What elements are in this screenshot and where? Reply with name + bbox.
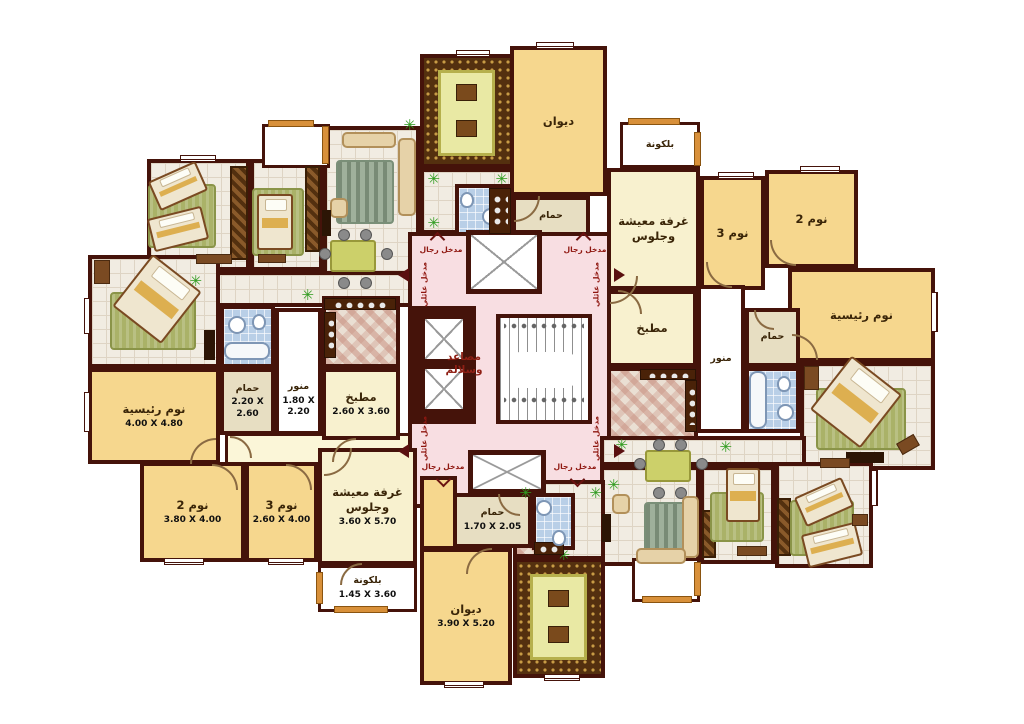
- wc-icon: [552, 530, 566, 546]
- rail-icon: [642, 596, 692, 603]
- msq-icon: [456, 84, 477, 101]
- window-icon: [718, 172, 754, 179]
- room-balcony-top-left: [262, 124, 330, 168]
- tv-icon: [602, 514, 611, 542]
- room-diwan-bottom-dimensions: 3.90 X 5.20: [437, 619, 495, 631]
- rail-icon: [694, 132, 701, 166]
- chair-icon: [653, 439, 665, 451]
- rail-icon: [628, 118, 680, 125]
- chair-icon: [360, 277, 372, 289]
- room-stairs-landing: [510, 352, 576, 388]
- rail-icon: [316, 572, 323, 604]
- wc-icon: [777, 376, 791, 392]
- window-icon: [456, 50, 490, 57]
- room-balcony-left-dimensions: 1.45 X 3.60: [339, 590, 397, 602]
- sofa-icon: [330, 198, 348, 218]
- chair-icon: [338, 277, 350, 289]
- window-icon: [800, 166, 840, 173]
- tv-icon: [322, 210, 331, 236]
- tub-icon: [224, 342, 270, 360]
- side-icon: [258, 254, 286, 263]
- wc-icon: [252, 314, 266, 330]
- tv-icon: [204, 330, 215, 360]
- side-icon: [804, 366, 819, 390]
- room-balcony-top-right: بلكونة: [620, 122, 700, 168]
- room-lightwell-right: منور: [697, 285, 745, 433]
- room-lightwell-left: منور1.80 X 2.20: [275, 308, 322, 435]
- window-icon: [164, 558, 204, 565]
- side-icon: [852, 514, 868, 526]
- room-balcony-left: بلكونة1.45 X 3.60: [318, 565, 417, 612]
- side-icon: [94, 260, 110, 284]
- room-diwan-top: ديوان: [510, 46, 607, 196]
- chair-icon: [338, 229, 350, 241]
- arrow-l-icon: [398, 268, 409, 282]
- mat-icon: [530, 574, 587, 660]
- counter-icon: [324, 312, 336, 358]
- plant-icon: ✳: [426, 172, 440, 186]
- tub-icon: [749, 371, 767, 429]
- sofa-icon: [342, 132, 396, 148]
- chair-icon: [360, 229, 372, 241]
- room-balcony-top-right-label: بلكونة: [623, 125, 697, 165]
- rail-icon: [268, 120, 314, 127]
- sofa-icon: [398, 138, 416, 216]
- room-bath-left-dimensions: 2.20 X 2.60: [224, 397, 271, 420]
- room-kitchen-left-dimensions: 2.60 X 3.60: [332, 407, 390, 419]
- plant-icon: ✳: [300, 288, 314, 302]
- window-icon: [180, 155, 216, 162]
- room-kitchen-left: مطبخ2.60 X 3.60: [322, 368, 400, 440]
- sink-icon: [228, 316, 246, 334]
- arrow-l-icon: [398, 444, 409, 458]
- chair-icon: [653, 487, 665, 499]
- room-stairs-dots-top: [504, 322, 584, 330]
- bed-icon: [257, 194, 293, 250]
- room-living-left-dimensions: 3.60 X 5.70: [339, 517, 397, 529]
- chair-icon: [675, 439, 687, 451]
- window-icon: [268, 558, 304, 565]
- window-icon: [84, 392, 91, 432]
- counter-icon: [640, 369, 696, 380]
- tv-icon: [846, 452, 884, 463]
- room-kitchen-left-label: مطبخ2.60 X 3.60: [326, 372, 396, 436]
- plant-icon: ✳: [588, 486, 602, 500]
- room-lightwell-right-label: منور: [701, 289, 741, 429]
- window-icon: [84, 298, 91, 334]
- room-bed2-left-dimensions: 3.80 X 4.00: [164, 515, 222, 527]
- room-stairs-dots-bottom: [504, 396, 584, 404]
- ward-icon: [305, 166, 320, 252]
- room-lightwell-left-dimensions: 1.80 X 2.20: [279, 396, 318, 419]
- dining-icon: [645, 450, 691, 482]
- room-bath-left: حمام2.20 X 2.60: [220, 368, 275, 435]
- room-lightwell-left-label: منور1.80 X 2.20: [279, 312, 318, 431]
- plant-icon: ✳: [494, 172, 508, 186]
- side-icon: [196, 254, 232, 264]
- msq-icon: [548, 590, 569, 607]
- room-vestibule-top: [466, 230, 542, 294]
- ward-icon: [777, 498, 791, 556]
- room-elevator-1: [420, 314, 468, 364]
- chair-icon: [634, 458, 646, 470]
- plant-icon: ✳: [606, 478, 620, 492]
- room-master-left-dimensions: 4.00 X 4.80: [125, 419, 183, 431]
- room-vestibule-bottom: [468, 450, 546, 494]
- plant-icon: ✳: [518, 486, 532, 500]
- window-icon: [444, 681, 484, 688]
- side-icon: [820, 458, 850, 468]
- window-icon: [931, 292, 938, 332]
- bed-icon: [726, 468, 760, 522]
- rail-icon: [322, 126, 329, 164]
- window-icon: [536, 42, 574, 49]
- sink-icon: [536, 500, 552, 516]
- room-diwan-entry: [420, 476, 457, 550]
- ward-icon: [230, 166, 248, 260]
- room-bath-bottom-dimensions: 1.70 X 2.05: [464, 522, 522, 534]
- msq-icon: [548, 626, 569, 643]
- floor-plan-canvas: بلكونةغرفة معيشةوجلوسنوم 3نوم 2نوم رئيسي…: [0, 0, 1024, 724]
- msq-icon: [456, 120, 477, 137]
- rail-icon: [334, 606, 388, 613]
- side-icon: [737, 546, 767, 556]
- counter-icon: [685, 380, 697, 432]
- sofa-icon: [636, 548, 686, 564]
- sink-icon: [777, 404, 794, 421]
- plant-icon: ✳: [426, 216, 440, 230]
- plant-icon: ✳: [718, 440, 732, 454]
- chair-icon: [319, 248, 331, 260]
- plant-icon: ✳: [402, 118, 416, 132]
- arrow-r-icon: [614, 444, 625, 458]
- room-elevator-2: [420, 364, 468, 414]
- dining-icon: [330, 240, 376, 272]
- window-icon: [544, 674, 580, 681]
- window-icon: [871, 470, 878, 506]
- room-bath-left-label: حمام2.20 X 2.60: [224, 372, 271, 431]
- counter-icon: [324, 298, 396, 310]
- room-diwan-top-label: ديوان: [514, 50, 603, 192]
- room-bed3-left-dimensions: 2.60 X 4.00: [253, 515, 311, 527]
- mat-icon: [438, 70, 495, 156]
- counter-icon: [489, 188, 511, 234]
- sofa-icon: [612, 494, 630, 514]
- room-balcony-left-label: بلكونة1.45 X 3.60: [321, 568, 414, 609]
- rail-icon: [694, 562, 701, 596]
- wc-icon: [460, 192, 474, 208]
